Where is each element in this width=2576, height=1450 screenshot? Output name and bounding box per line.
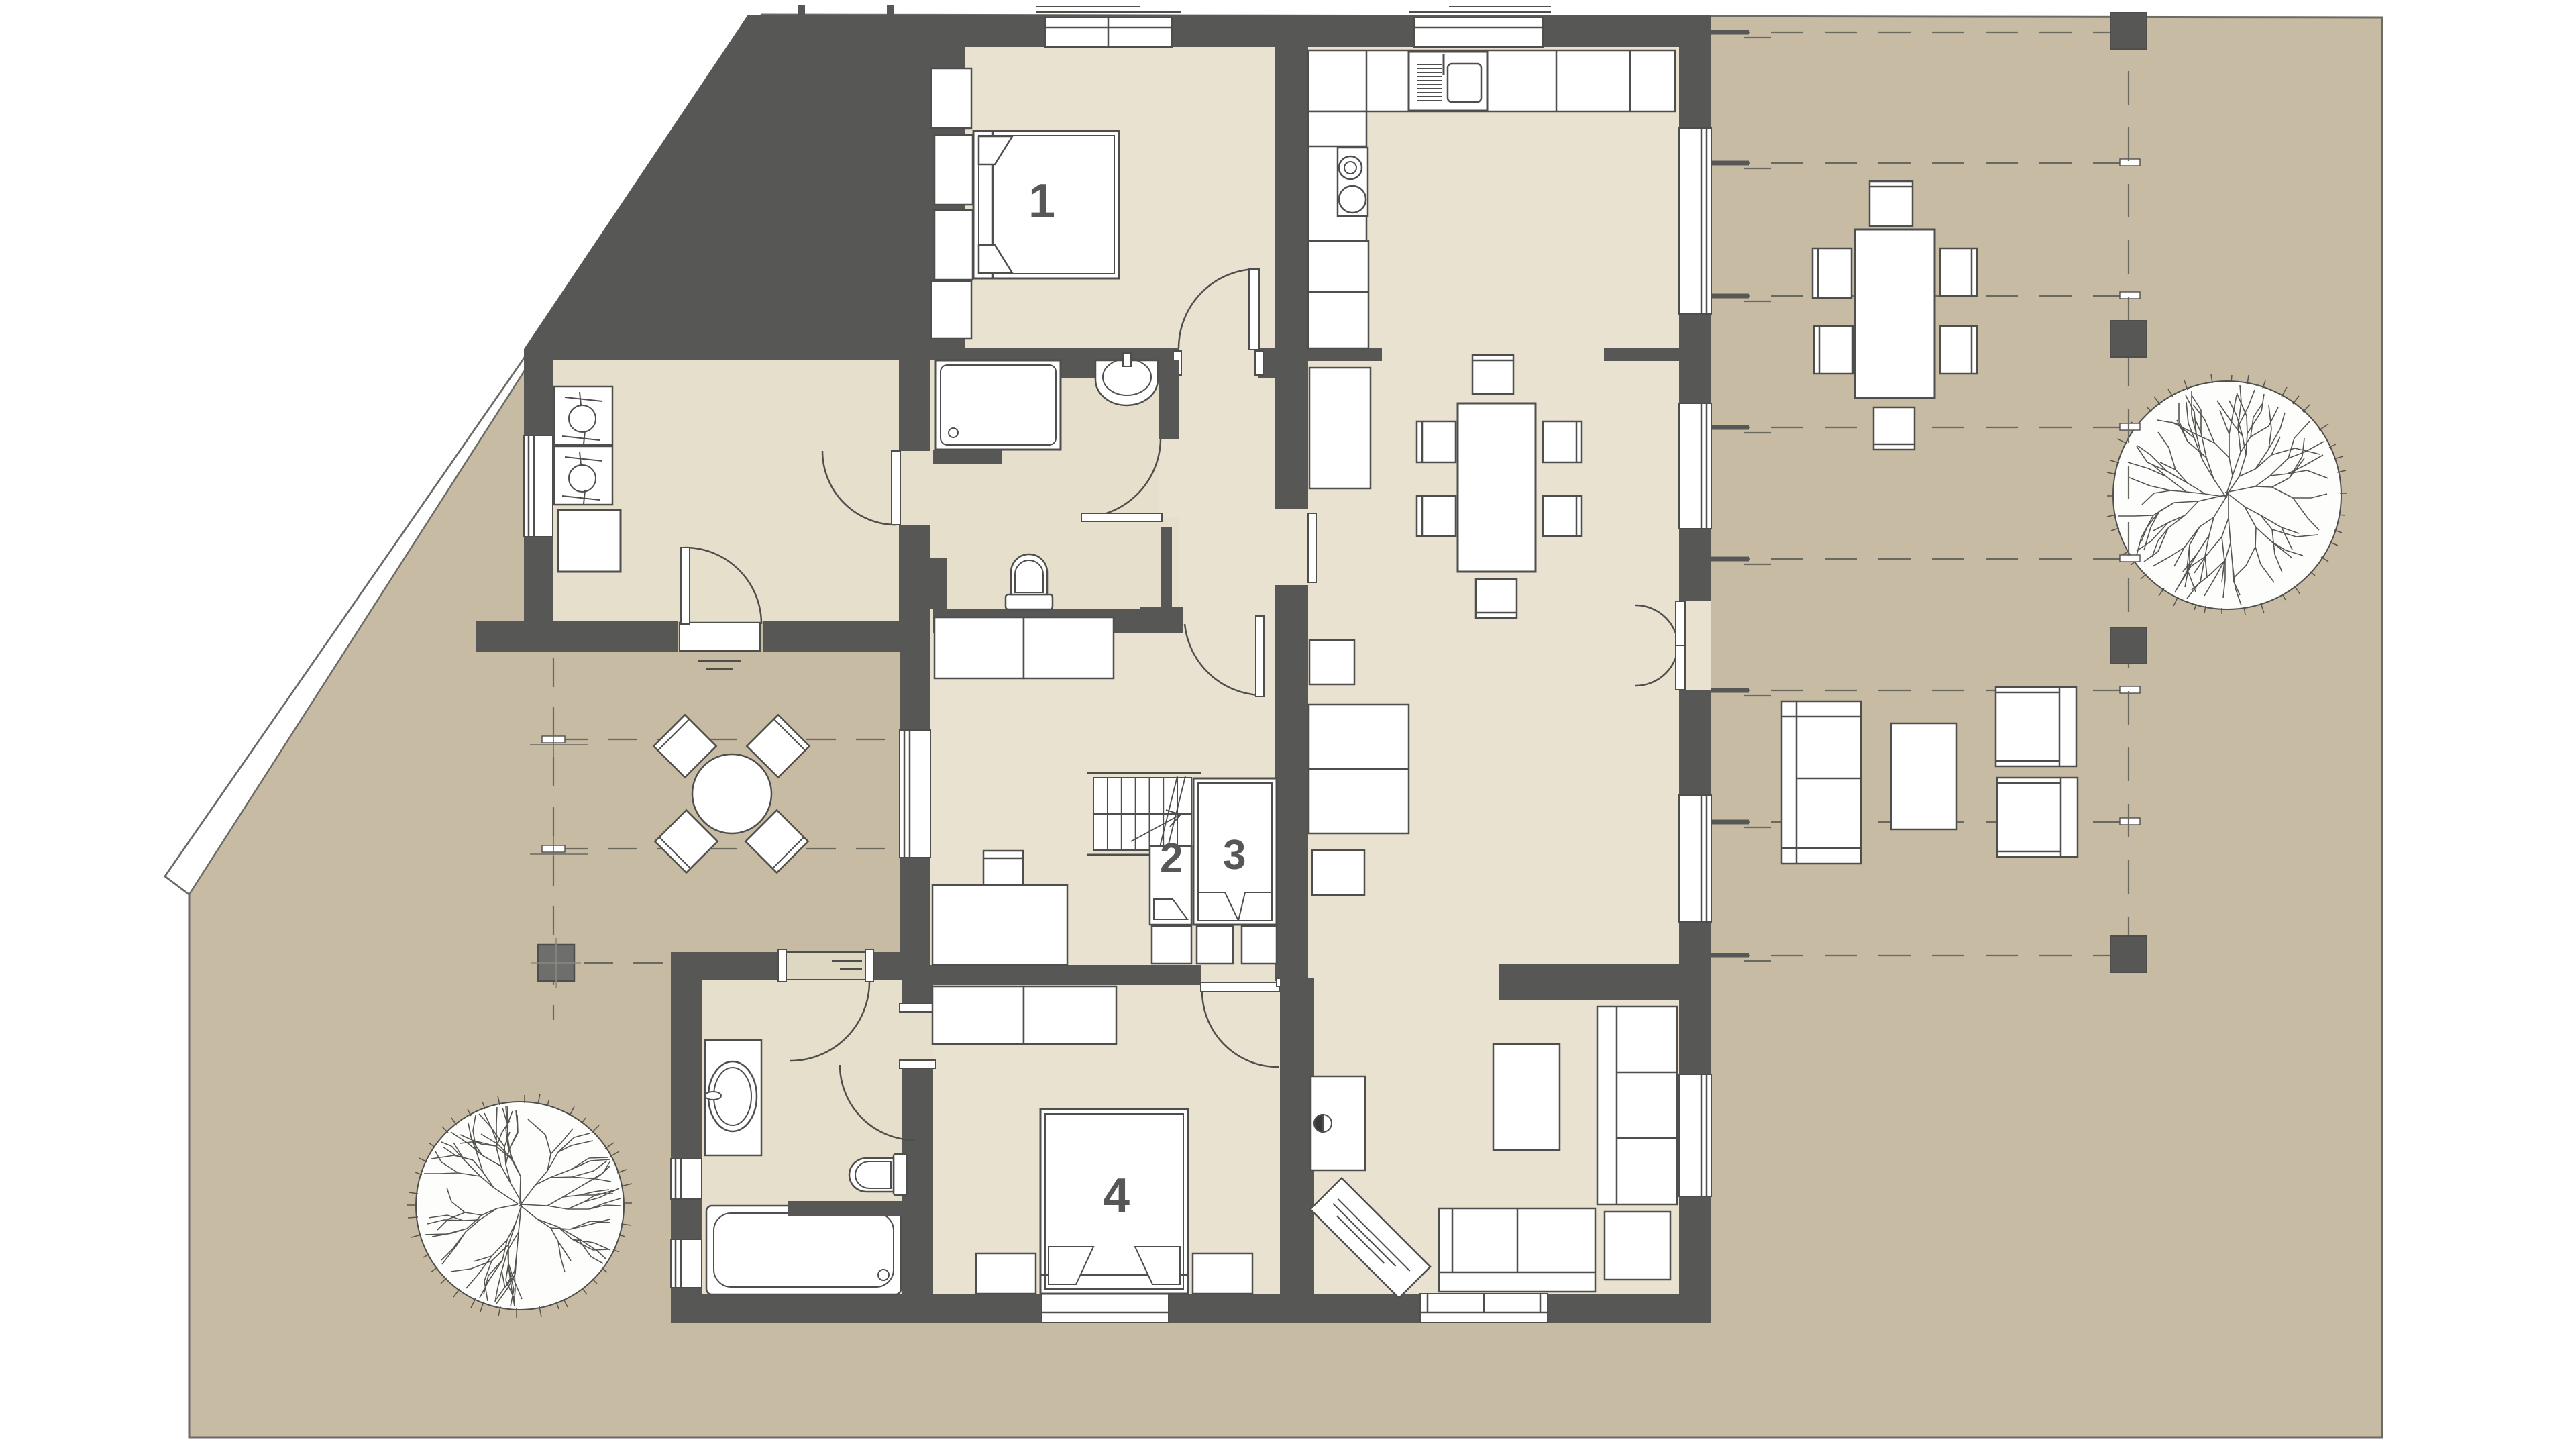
svg-text:4: 4 [1103, 1169, 1130, 1223]
svg-text:1: 1 [1028, 174, 1055, 228]
svg-text:3: 3 [1223, 832, 1246, 878]
svg-text:2: 2 [1160, 835, 1183, 882]
